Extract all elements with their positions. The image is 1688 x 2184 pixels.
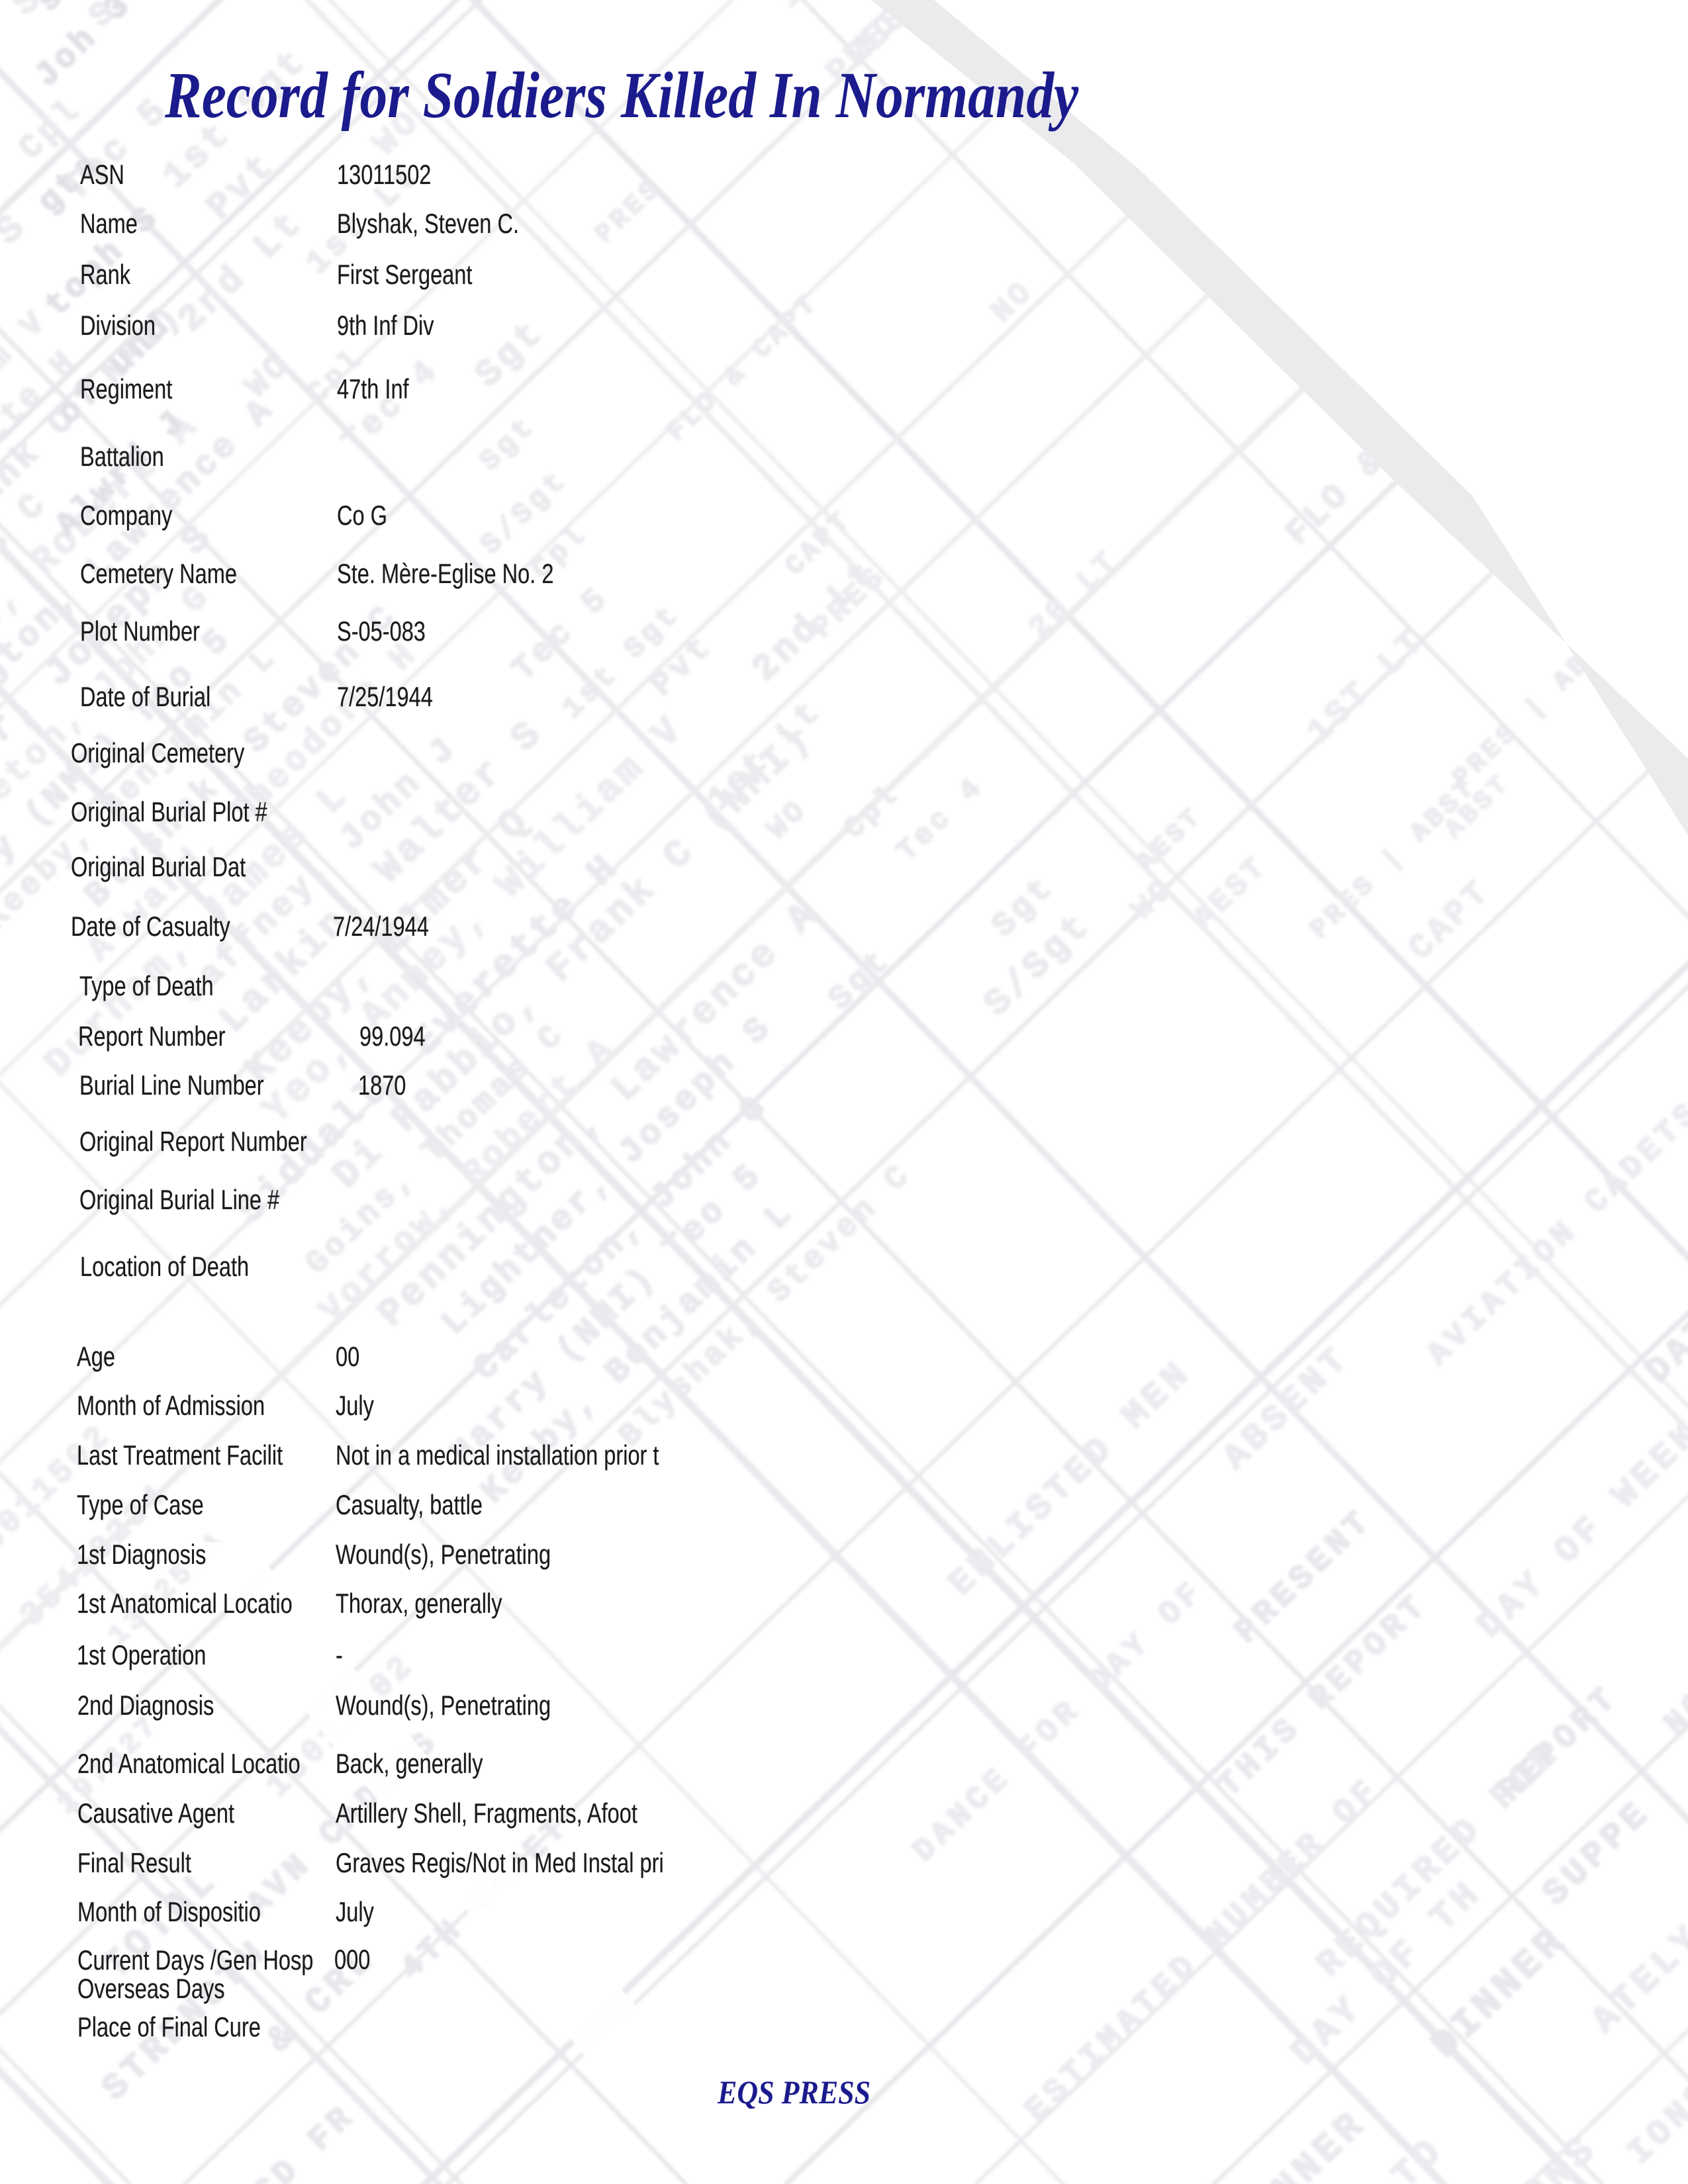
svg-text:CAPT: CAPT: [1401, 872, 1499, 969]
svg-text:NOT FOR DUTY: NOT FOR DUTY: [1658, 1514, 1688, 1743]
svg-text:ATCD FR: ATCD FR: [211, 2097, 364, 2184]
svg-text:Sgt: Sgt: [467, 311, 553, 396]
svg-text:NO: NO: [985, 274, 1041, 330]
svg-text:1ST LT: 1ST LT: [775, 0, 882, 15]
svg-text:Tec 4: Tec 4: [891, 770, 991, 869]
svg-text:ENLISTED MEN: ENLISTED MEN: [942, 1353, 1201, 1605]
svg-text:1ST LT: 1ST LT: [1300, 621, 1434, 752]
svg-text:PRES: PRES: [590, 173, 669, 250]
svg-text:IONS S: IONS S: [1620, 2036, 1688, 2173]
svg-text:Sgt: Sgt: [821, 942, 899, 1019]
svg-text:DATE: DATE: [1638, 1289, 1688, 1392]
svg-text:Joh 3: Joh 3: [28, 0, 140, 95]
svg-text:Cpl: Cpl: [838, 778, 908, 846]
svg-text:REPORT: REPORT: [1492, 1678, 1627, 1810]
svg-text:Sgt: Sgt: [473, 410, 543, 478]
svg-text:DANCE FOR DAY OF: DANCE FOR DAY OF: [907, 1573, 1212, 1870]
svg-text:AVIATION CADETS: AVIATION CADETS: [1421, 1094, 1688, 1373]
svg-text:DINNER: DINNER: [1224, 2102, 1376, 2184]
svg-text:WO: WO: [761, 793, 815, 846]
svg-text:20 LT: 20 LT: [1023, 543, 1127, 645]
svg-text:AEST: AEST: [1187, 849, 1275, 936]
